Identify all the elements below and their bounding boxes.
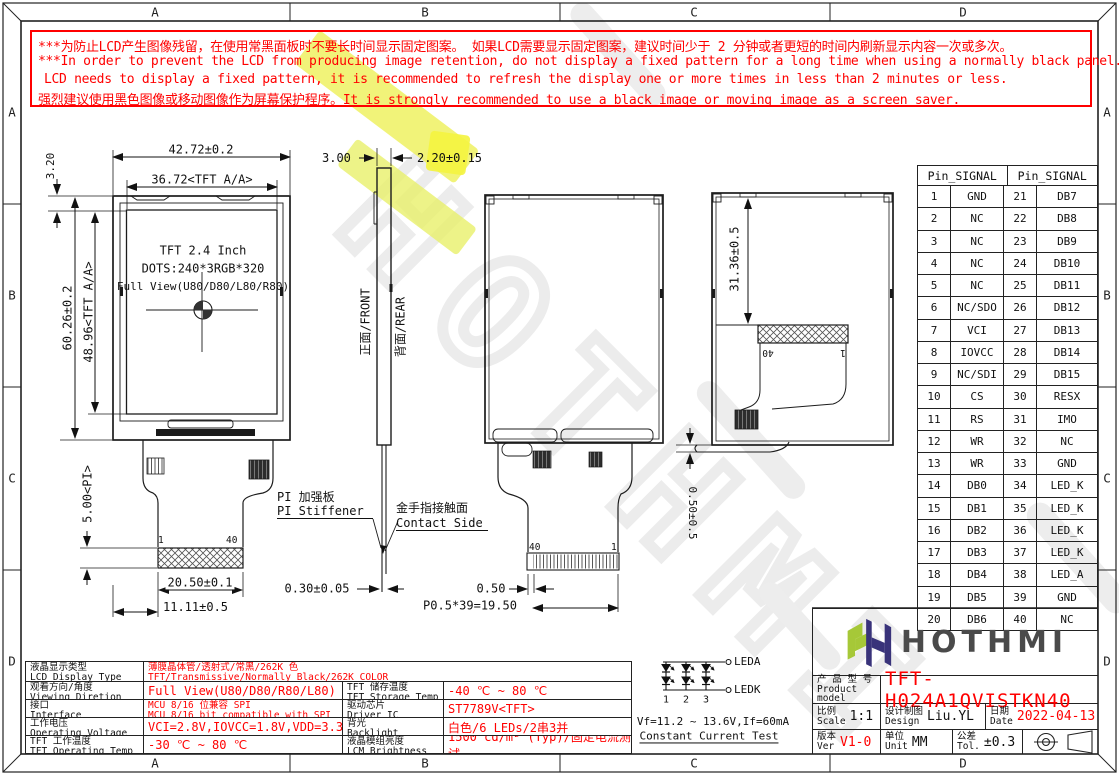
pin-number-cell: 16: [918, 520, 951, 541]
pin-number-cell: 22: [1004, 208, 1037, 229]
warning-line-3: LCD needs to display a fixed pattern, it…: [44, 72, 1007, 87]
pin-table-header-left: Pin_SIGNAL: [918, 166, 1008, 185]
hothmi-logo-icon: [843, 615, 893, 669]
dim-active-height: 48.96<TFT A/A>: [82, 261, 95, 362]
design-value: Liu.YL: [927, 709, 974, 724]
spec-label-cell: 驱动芯片Driver IC: [343, 700, 444, 717]
pin-table-row: 16DB236LED_K: [918, 520, 1097, 542]
spec-value-line: -30 ℃ ~ 80 ℃: [148, 737, 342, 753]
unit-label-en: Unit: [885, 742, 908, 752]
pin-number-cell: 30: [1004, 386, 1037, 407]
dim-pi-height: 5.00<PI>: [81, 465, 94, 523]
spec-row: 工作电压Operating VoltageVCI=2.8V,IOVCC=1.8V…: [26, 718, 631, 736]
contact-side-label-zh: 金手指接触面: [396, 502, 468, 515]
pin-number-cell: 6: [918, 297, 951, 318]
pin-signal-cell: DB1: [951, 498, 1004, 519]
pin-table-row: 1GND21DB7: [918, 186, 1097, 208]
pin-number-cell: 35: [1004, 498, 1037, 519]
warning-box: ***为防止LCD产生图像残留，在使用常黑面板时不要长时间显示固定图案。 如果L…: [30, 30, 1092, 107]
pin-table-rows: 1GND21DB72NC22DB83NC23DB94NC24DB105NC25D…: [918, 186, 1097, 630]
strip-pin1-marker: 1: [611, 543, 617, 553]
spec-value-cell: MCU 8/16 位兼容 SPIMCU 8/16 bit compatible …: [144, 700, 343, 717]
projection-angle-icon: [1032, 730, 1094, 754]
pin-signal-cell: DB7: [1037, 186, 1097, 207]
zone-label-bottom: B: [421, 756, 429, 771]
pi-stiffener-label-en: PI Stiffener: [277, 505, 373, 519]
spec-value-line: 白色/6 LEDs/2串3并: [448, 719, 631, 735]
date-value: 2022-04-13: [1017, 709, 1095, 724]
tol-label-en: Tol.: [957, 742, 980, 752]
logo-row: HOTHMI: [813, 609, 1098, 676]
pin-number-cell: 39: [1004, 587, 1037, 608]
pin-table-row: 10CS30RESX: [918, 386, 1097, 408]
spec-label-cell: 接口Interface: [26, 700, 144, 717]
warning-line-2: ***In order to prevent the LCD from prod…: [38, 54, 1119, 69]
title-block: HOTHMI 产 品 型 号Product model TFT-H024A1QV…: [812, 608, 1098, 754]
spec-label-cell: TFT 储存温度TFT Storage Temp: [343, 682, 444, 699]
pin-signal-cell: GND: [951, 186, 1004, 207]
pin-signal-cell: IMO: [1037, 409, 1097, 430]
pin-table-row: 17DB337LED_K: [918, 542, 1097, 564]
pin-table-header: Pin_SIGNAL Pin_SIGNAL: [918, 166, 1097, 186]
spec-label-cell: 背光Backlight: [343, 718, 444, 735]
dim-connector-width: 20.50±0.1: [165, 576, 234, 589]
spec-label-en: Operating Voltage: [30, 729, 143, 736]
unit-value: MM: [912, 735, 928, 750]
ver-value: V1-0: [840, 735, 871, 750]
dim-outline-width: 42.72±0.2: [166, 143, 235, 156]
zone-label-top: C: [690, 5, 698, 20]
pin-table-row: 12WR32NC: [918, 431, 1097, 453]
scale-value: 1:1: [850, 709, 873, 724]
scale-cell: 比例Scale 1:1: [813, 704, 881, 729]
fold-pin1-marker: 1: [840, 347, 846, 357]
rear-face-label: 背面/REAR: [394, 297, 407, 357]
pin-table-row: 9NC/SDI29DB15: [918, 364, 1097, 386]
panel-size-label: TFT 2.4 Inch: [160, 244, 247, 257]
spec-label-cell: TFT 工作温度TFT Operating Temp: [26, 736, 144, 753]
leda-terminal-label: LEDA: [734, 656, 761, 668]
contact-side-label-en: Contact Side: [396, 517, 488, 531]
pin-signal-cell: IOVCC: [951, 342, 1004, 363]
front-face-label: 正面/FRONT: [359, 288, 372, 355]
pin-signal-cell: DB3: [951, 542, 1004, 563]
pin-number-cell: 25: [1004, 275, 1037, 296]
zone-label-top: D: [959, 5, 967, 20]
pin-number-cell: 14: [918, 475, 951, 496]
pin-number-cell: 5: [918, 275, 951, 296]
spec-label-en: Interface: [30, 711, 143, 718]
pin-signal-cell: GND: [1037, 453, 1097, 474]
pin-number-cell: 1: [918, 186, 951, 207]
product-model-row: 产 品 型 号Product model TFT-H024A1QVISTKN40: [813, 676, 1098, 704]
spec-value-line: 1500 cd/m² (Typ)/固定电流测试: [448, 737, 631, 753]
spec-label-en: LCD Display Type: [30, 673, 143, 682]
pin-signal-cell: DB2: [951, 520, 1004, 541]
spec-table: 液晶显示类型LCD Display Type薄膜晶体管/透射式/常黑/262K …: [25, 661, 632, 754]
led-test-note: Constant Current Test: [639, 730, 778, 743]
zone-label-left: D: [8, 654, 16, 669]
pin-table-row: 18DB438LED_A: [918, 564, 1097, 586]
tol-value: ±0.3: [984, 735, 1015, 750]
spec-value-cell: 白色/6 LEDs/2串3并: [444, 718, 631, 735]
zone-label-right: C: [1103, 471, 1111, 486]
pin-signal-cell: WR: [951, 453, 1004, 474]
tolerance-cell: 公差Tol. ±0.3: [953, 730, 1023, 754]
pin-number-cell: 8: [918, 342, 951, 363]
pin-signal-cell: LED_K: [1037, 520, 1097, 541]
pin-signal-cell: NC: [951, 231, 1004, 252]
pin-signal-cell: DB11: [1037, 275, 1097, 296]
design-cell: 设计制图Design Liu.YL: [881, 704, 986, 729]
design-label-zh: 设计制图: [885, 707, 923, 717]
spec-row: 液晶显示类型LCD Display Type薄膜晶体管/透射式/常黑/262K …: [26, 662, 631, 682]
spec-value-cell: 薄膜晶体管/透射式/常黑/262K 色TFT/Transmissive/Norm…: [144, 662, 627, 681]
pin-number-cell: 26: [1004, 297, 1037, 318]
pin-signal-cell: NC: [951, 275, 1004, 296]
strip-pin40-marker: 40: [529, 543, 540, 553]
warning-line-1: ***为防止LCD产生图像残留，在使用常黑面板时不要长时间显示固定图案。 如果L…: [38, 36, 1012, 55]
pin-number-cell: 13: [918, 453, 951, 474]
zone-label-top: A: [151, 5, 159, 20]
warning-line-4: 强烈建议使用黑色图像或移动图像作为屏幕保护程序。It is strongly r…: [38, 89, 960, 108]
pin-table-row: 3NC23DB9: [918, 231, 1097, 253]
pin-table-row: 15DB135LED_K: [918, 498, 1097, 520]
pin-number-cell: 9: [918, 364, 951, 385]
date-label-zh: 日期: [990, 707, 1013, 717]
dim-outline-height: 60.26±0.2: [61, 285, 74, 350]
pin-table-row: 19DB539GND: [918, 587, 1097, 609]
zone-label-right: B: [1103, 288, 1111, 303]
pin1-marker: 1: [158, 536, 164, 546]
spec-value-cell: VCI=2.8V,IOVCC=1.8V,VDD=3.3V(Typ): [144, 718, 343, 735]
spec-value-cell: Full View(U80/D80/R80/L80): [144, 682, 343, 699]
date-cell: 日期Date 2022-04-13: [986, 704, 1098, 729]
pin-number-cell: 29: [1004, 364, 1037, 385]
zone-label-bottom: D: [959, 756, 967, 771]
spec-label-cell: 工作电压Operating Voltage: [26, 718, 144, 735]
pin-table-row: 6NC/SDO26DB12: [918, 297, 1097, 319]
pin-signal-cell: NC/SDO: [951, 297, 1004, 318]
panel-dots-label: DOTS:240*3RGB*320: [142, 262, 265, 275]
pin-signal-cell: NC: [951, 253, 1004, 274]
zone-label-right: D: [1103, 654, 1111, 669]
pin-signal-cell: DB5: [951, 587, 1004, 608]
zone-label-left: B: [8, 288, 16, 303]
pin40-marker: 40: [226, 536, 237, 546]
date-label-en: Date: [990, 717, 1013, 727]
spec-label-cell: 液晶模组亮度LCM Brightness: [343, 736, 444, 753]
fold-pin40-marker: 40: [762, 347, 773, 357]
pin-signal-cell: DB4: [951, 564, 1004, 585]
pin-number-cell: 19: [918, 587, 951, 608]
spec-label-en: Backlight: [347, 729, 443, 736]
scale-label-zh: 比例: [817, 707, 846, 717]
led-column-number: 2: [683, 695, 689, 706]
pin-table-row: 4NC24DB10: [918, 253, 1097, 275]
pin-table-row: 2NC22DB8: [918, 208, 1097, 230]
ledk-terminal-label: LEDK: [734, 684, 761, 696]
dim-module-thickness: 2.20±0.15: [417, 152, 482, 165]
panel-view-label: Full View(U80/D80/L80/R80): [117, 281, 289, 293]
pin-number-cell: 10: [918, 386, 951, 407]
pin-number-cell: 33: [1004, 453, 1037, 474]
spec-label-en: LCM Brightness: [347, 747, 443, 754]
pin-number-cell: 28: [1004, 342, 1037, 363]
spec-label-en: TFT Operating Temp: [30, 747, 143, 754]
spec-row: 观看方向/角度Viewing DiretionFull View(U80/D80…: [26, 682, 631, 700]
pin-number-cell: 15: [918, 498, 951, 519]
spec-value-line: ST7789V<TFT>: [448, 701, 631, 717]
pin-number-cell: 24: [1004, 253, 1037, 274]
led-vf-spec: Vf=11.2 ~ 13.6V,If=60mA: [637, 716, 789, 728]
spec-row: TFT 工作温度TFT Operating Temp-30 ℃ ~ 80 ℃液晶…: [26, 736, 631, 753]
pin-number-cell: 7: [918, 320, 951, 341]
pin-signal-cell: RS: [951, 409, 1004, 430]
pin-number-cell: 31: [1004, 409, 1037, 430]
version-cell: 版本Ver V1-0: [813, 730, 881, 754]
pin-signal-cell: LED_K: [1037, 542, 1097, 563]
spec-value-cell: -40 ℃ ~ 80 ℃: [444, 682, 631, 699]
unit-cell: 单位Unit MM: [881, 730, 953, 754]
zone-label-bottom: A: [151, 756, 159, 771]
pin-signal-cell: NC: [1037, 431, 1097, 452]
dim-fpc-thickness: 0.30±0.05: [284, 582, 349, 595]
dim-top-offset: 3.20: [45, 153, 57, 180]
ver-label-en: Ver: [817, 742, 836, 752]
pin-signal-cell: DB12: [1037, 297, 1097, 318]
pin-signal-cell: LED_K: [1037, 475, 1097, 496]
pin-table-header-right: Pin_SIGNAL: [1008, 166, 1098, 185]
pin-number-cell: 4: [918, 253, 951, 274]
pin-signal-table: Pin_SIGNAL Pin_SIGNAL 1GND21DB72NC22DB83…: [917, 165, 1098, 631]
pin-table-row: 8IOVCC28DB14: [918, 342, 1097, 364]
spec-label-en: TFT Storage Temp: [347, 693, 443, 700]
spec-label-cell: 观看方向/角度Viewing Diretion: [26, 682, 144, 699]
pin-number-cell: 3: [918, 231, 951, 252]
zone-label-left: C: [8, 471, 16, 486]
pin-signal-cell: DB14: [1037, 342, 1097, 363]
pin-table-row: 11RS31IMO: [918, 409, 1097, 431]
pin-table-row: 13WR33GND: [918, 453, 1097, 475]
version-row: 版本Ver V1-0 单位Unit MM 公差Tol. ±0.3: [813, 730, 1098, 754]
pin-signal-cell: DB0: [951, 475, 1004, 496]
pin-number-cell: 23: [1004, 231, 1037, 252]
led-column-number: 1: [663, 695, 669, 706]
scale-label-en: Scale: [817, 717, 846, 727]
spec-value-line: MCU 8/16 bit compatible with SPI: [148, 711, 342, 717]
spec-value-cell: -30 ℃ ~ 80 ℃: [144, 736, 343, 753]
pin-number-cell: 11: [918, 409, 951, 430]
spec-value-line: VCI=2.8V,IOVCC=1.8V,VDD=3.3V(Typ): [148, 719, 342, 735]
pin-table-row: 7VCI27DB13: [918, 320, 1097, 342]
spec-value-line: TFT/Transmissive/Normally Black/262K COL…: [148, 673, 627, 681]
dim-connector-position: 31.36±0.5: [728, 226, 741, 291]
dim-connector-offset: 11.11±0.5: [163, 601, 228, 614]
pin-signal-cell: NC: [951, 208, 1004, 229]
spec-value-cell: ST7789V<TFT>: [444, 700, 631, 717]
dim-fpc-protrusion: 0.50±0.5: [686, 487, 698, 540]
product-model-label: 产 品 型 号Product model: [813, 676, 881, 703]
dim-total-thickness: 3.00: [322, 152, 351, 165]
pin-signal-cell: DB9: [1037, 231, 1097, 252]
spec-label-en: Driver IC: [347, 711, 443, 718]
pin-number-cell: 17: [918, 542, 951, 563]
pin-signal-cell: NC/SDI: [951, 364, 1004, 385]
product-model-value-cell: TFT-H024A1QVISTKN40: [881, 676, 1098, 703]
product-label-en: Product model: [817, 685, 880, 705]
zone-label-right: A: [1103, 105, 1111, 120]
spec-value-line: -40 ℃ ~ 80 ℃: [448, 683, 631, 699]
led-column-number: 3: [703, 695, 709, 706]
spec-value-line: Full View(U80/D80/R80/L80): [148, 683, 342, 699]
pi-stiffener-label-zh: PI 加强板: [277, 491, 335, 504]
spec-label-en: Viewing Diretion: [30, 693, 143, 700]
datasheet-page: HOTHMI: [0, 0, 1119, 775]
pin-number-cell: 18: [918, 564, 951, 585]
pin-number-cell: 34: [1004, 475, 1037, 496]
pin-number-cell: 2: [918, 208, 951, 229]
pin-number-cell: 38: [1004, 564, 1037, 585]
pin-signal-cell: DB13: [1037, 320, 1097, 341]
pin-number-cell: 37: [1004, 542, 1037, 563]
dim-active-width: 36.72<TFT A/A>: [149, 173, 254, 186]
spec-value-cell: 1500 cd/m² (Typ)/固定电流测试: [444, 736, 631, 753]
design-row: 比例Scale 1:1 设计制图Design Liu.YL 日期Date 202…: [813, 704, 1098, 730]
pin-signal-cell: WR: [951, 431, 1004, 452]
spec-label-cell: 液晶显示类型LCD Display Type: [26, 662, 144, 681]
pin-number-cell: 21: [1004, 186, 1037, 207]
spec-row: 接口InterfaceMCU 8/16 位兼容 SPIMCU 8/16 bit …: [26, 700, 631, 718]
pin-number-cell: 32: [1004, 431, 1037, 452]
warning-line-4-zh: 强烈建议使用黑色图像或移动图像作为屏幕保护程序。: [38, 93, 343, 108]
pin-signal-cell: LED_A: [1037, 564, 1097, 585]
dim-finger-offset: 0.50: [477, 582, 506, 595]
zone-label-bottom: C: [690, 756, 698, 771]
pin-table-row: 5NC25DB11: [918, 275, 1097, 297]
pin-number-cell: 27: [1004, 320, 1037, 341]
pin-number-cell: 12: [918, 431, 951, 452]
pin-signal-cell: DB15: [1037, 364, 1097, 385]
projection-symbol-cell: [1023, 730, 1098, 754]
pin-table-row: 14DB034LED_K: [918, 475, 1097, 497]
pin-signal-cell: LED_K: [1037, 498, 1097, 519]
brand-wordmark: HOTHMI: [901, 625, 1068, 660]
pin-signal-cell: DB8: [1037, 208, 1097, 229]
warning-line-4-en: It is strongly recommended to use a blac…: [343, 93, 960, 108]
pin-signal-cell: RESX: [1037, 386, 1097, 407]
pin-signal-cell: DB10: [1037, 253, 1097, 274]
pin-number-cell: 36: [1004, 520, 1037, 541]
pin-signal-cell: GND: [1037, 587, 1097, 608]
zone-label-top: B: [421, 5, 429, 20]
pin-signal-cell: CS: [951, 386, 1004, 407]
dim-finger-pitch: P0.5*39=19.50: [423, 599, 517, 612]
design-label-en: Design: [885, 717, 923, 727]
zone-label-left: A: [8, 105, 16, 120]
pin-signal-cell: VCI: [951, 320, 1004, 341]
